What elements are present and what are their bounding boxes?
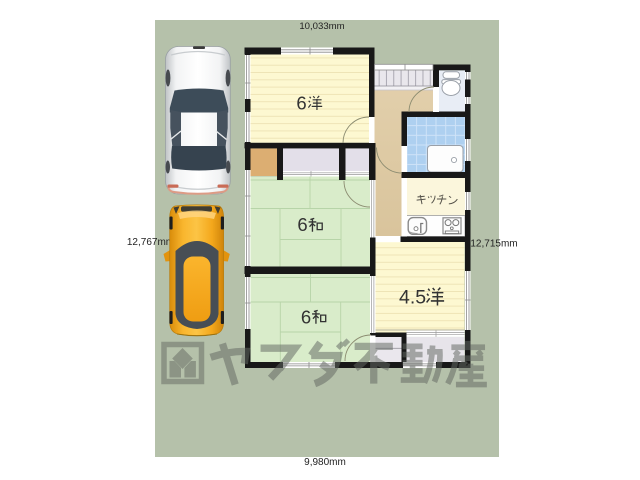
svg-text:10,033mm: 10,033mm [299,21,344,32]
svg-text:6: 6 [296,93,306,114]
svg-text:6: 6 [301,307,311,328]
svg-text:4.5: 4.5 [399,287,426,309]
svg-text:12,715mm: 12,715mm [470,239,517,250]
svg-text:9,980mm: 9,980mm [304,457,346,468]
svg-text:12,767mm: 12,767mm [127,237,174,248]
svg-text:6: 6 [297,214,307,235]
